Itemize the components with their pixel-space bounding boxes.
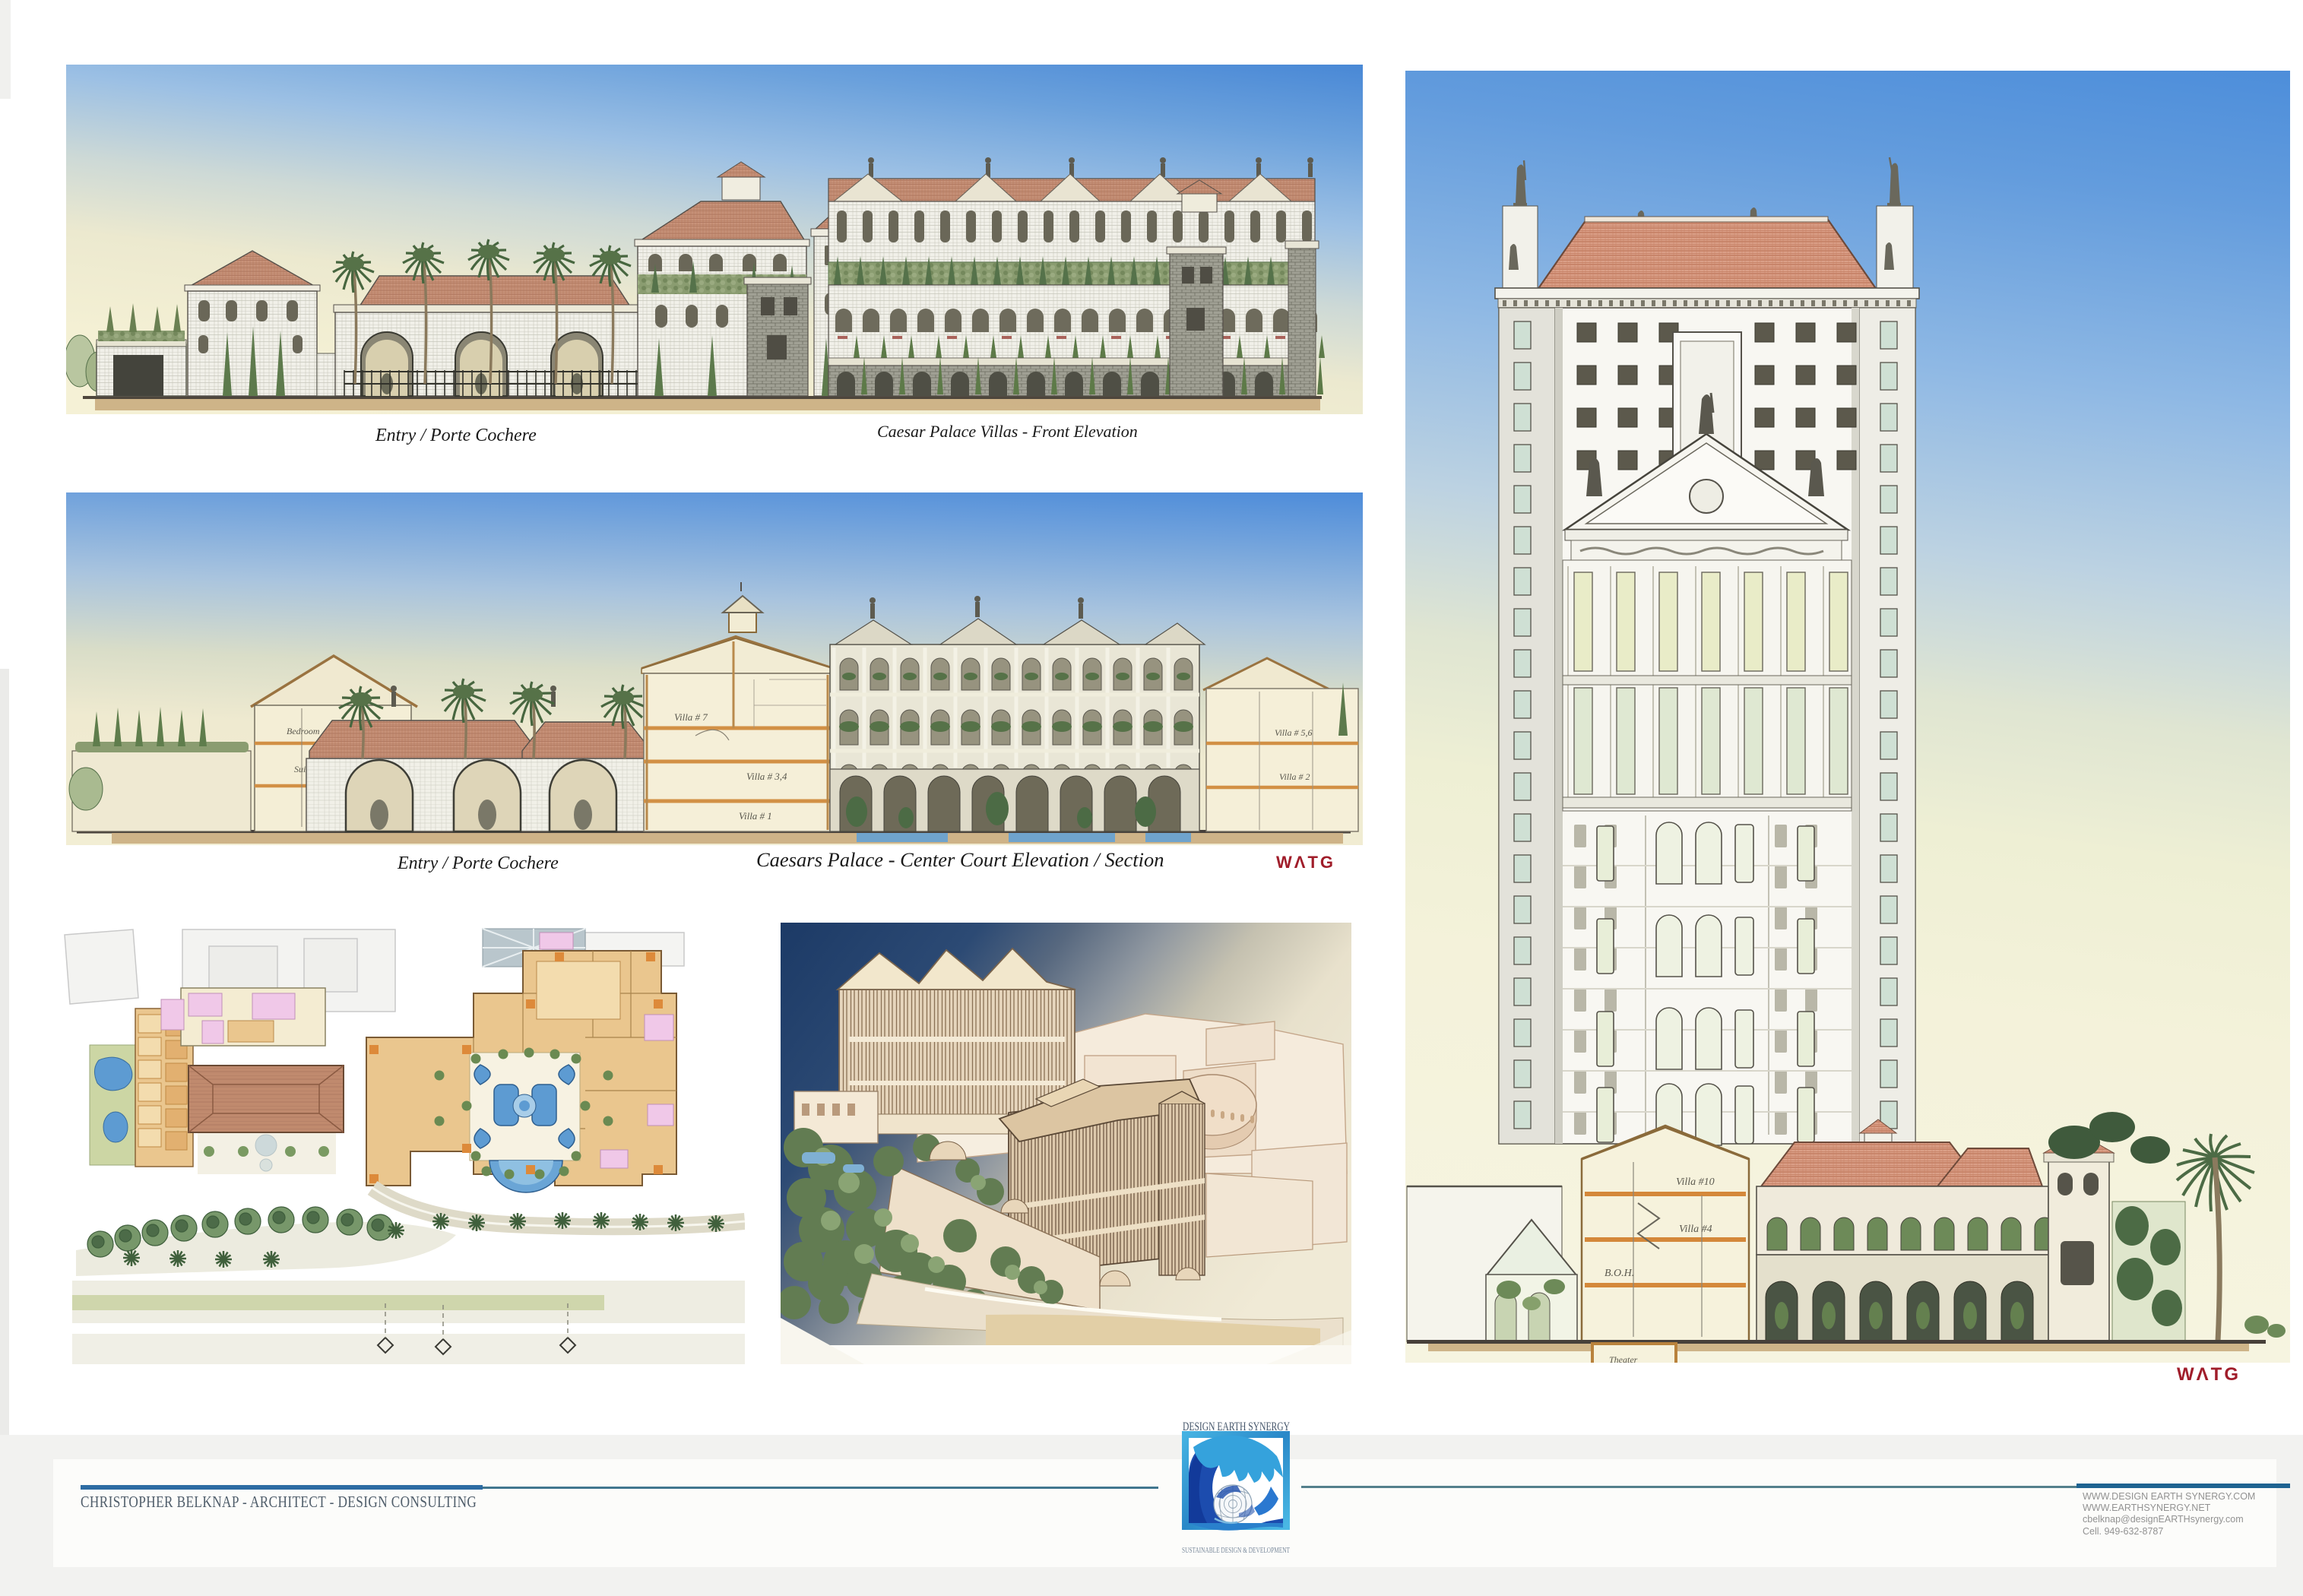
svg-text:Villa #4: Villa #4 xyxy=(1679,1224,1712,1235)
svg-text:Villa # 3,4: Villa # 3,4 xyxy=(746,771,787,782)
svg-text:Villa # 2: Villa # 2 xyxy=(1279,771,1310,782)
svg-text:B.O.H.: B.O.H. xyxy=(1604,1268,1634,1279)
svg-text:Villa # 7: Villa # 7 xyxy=(674,711,708,723)
svg-text:Villa # 1: Villa # 1 xyxy=(739,810,772,822)
svg-text:Villa # 5,6: Villa # 5,6 xyxy=(1275,727,1312,738)
svg-text:Villa #10: Villa #10 xyxy=(1676,1176,1715,1188)
svg-text:SUSTAINABLE DESIGN & DEVELOPME: SUSTAINABLE DESIGN & DEVELOPMENT xyxy=(1182,1547,1290,1555)
svg-text:Theater: Theater xyxy=(1609,1354,1638,1363)
svg-text:Bedroom: Bedroom xyxy=(287,726,320,736)
